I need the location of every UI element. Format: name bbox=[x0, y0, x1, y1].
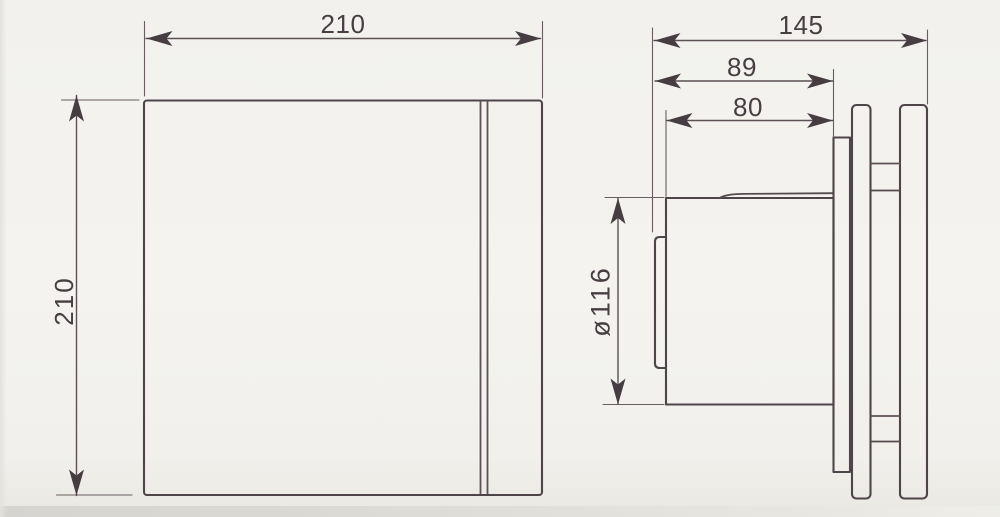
spigot-diameter-label: ø116 bbox=[588, 265, 615, 337]
duct-spigot-body bbox=[666, 198, 834, 405]
front-width-label: 210 bbox=[321, 11, 366, 37]
total-depth-label: 145 bbox=[779, 12, 824, 38]
front-height-label: 210 bbox=[51, 276, 77, 325]
wall-plate-inner bbox=[852, 105, 871, 499]
spigot-depth-label: 80 bbox=[733, 94, 763, 120]
motor-bump-outline bbox=[655, 237, 666, 368]
front-view bbox=[144, 101, 542, 496]
body-depth-label: 89 bbox=[727, 54, 757, 80]
drawing-svg bbox=[0, 0, 1000, 517]
dimension-total-depth bbox=[653, 28, 928, 232]
mounting-plate bbox=[834, 138, 851, 473]
dimension-spigot-depth bbox=[666, 111, 833, 197]
technical-drawing-canvas: 210 210 145 89 80 ø116 bbox=[0, 0, 1000, 517]
side-view bbox=[655, 105, 927, 499]
front-panel-outline bbox=[144, 101, 542, 496]
scan-left-shadow bbox=[0, 0, 7, 517]
wall-plate-outer bbox=[900, 105, 927, 499]
scan-bottom-shadow bbox=[0, 506, 1000, 517]
